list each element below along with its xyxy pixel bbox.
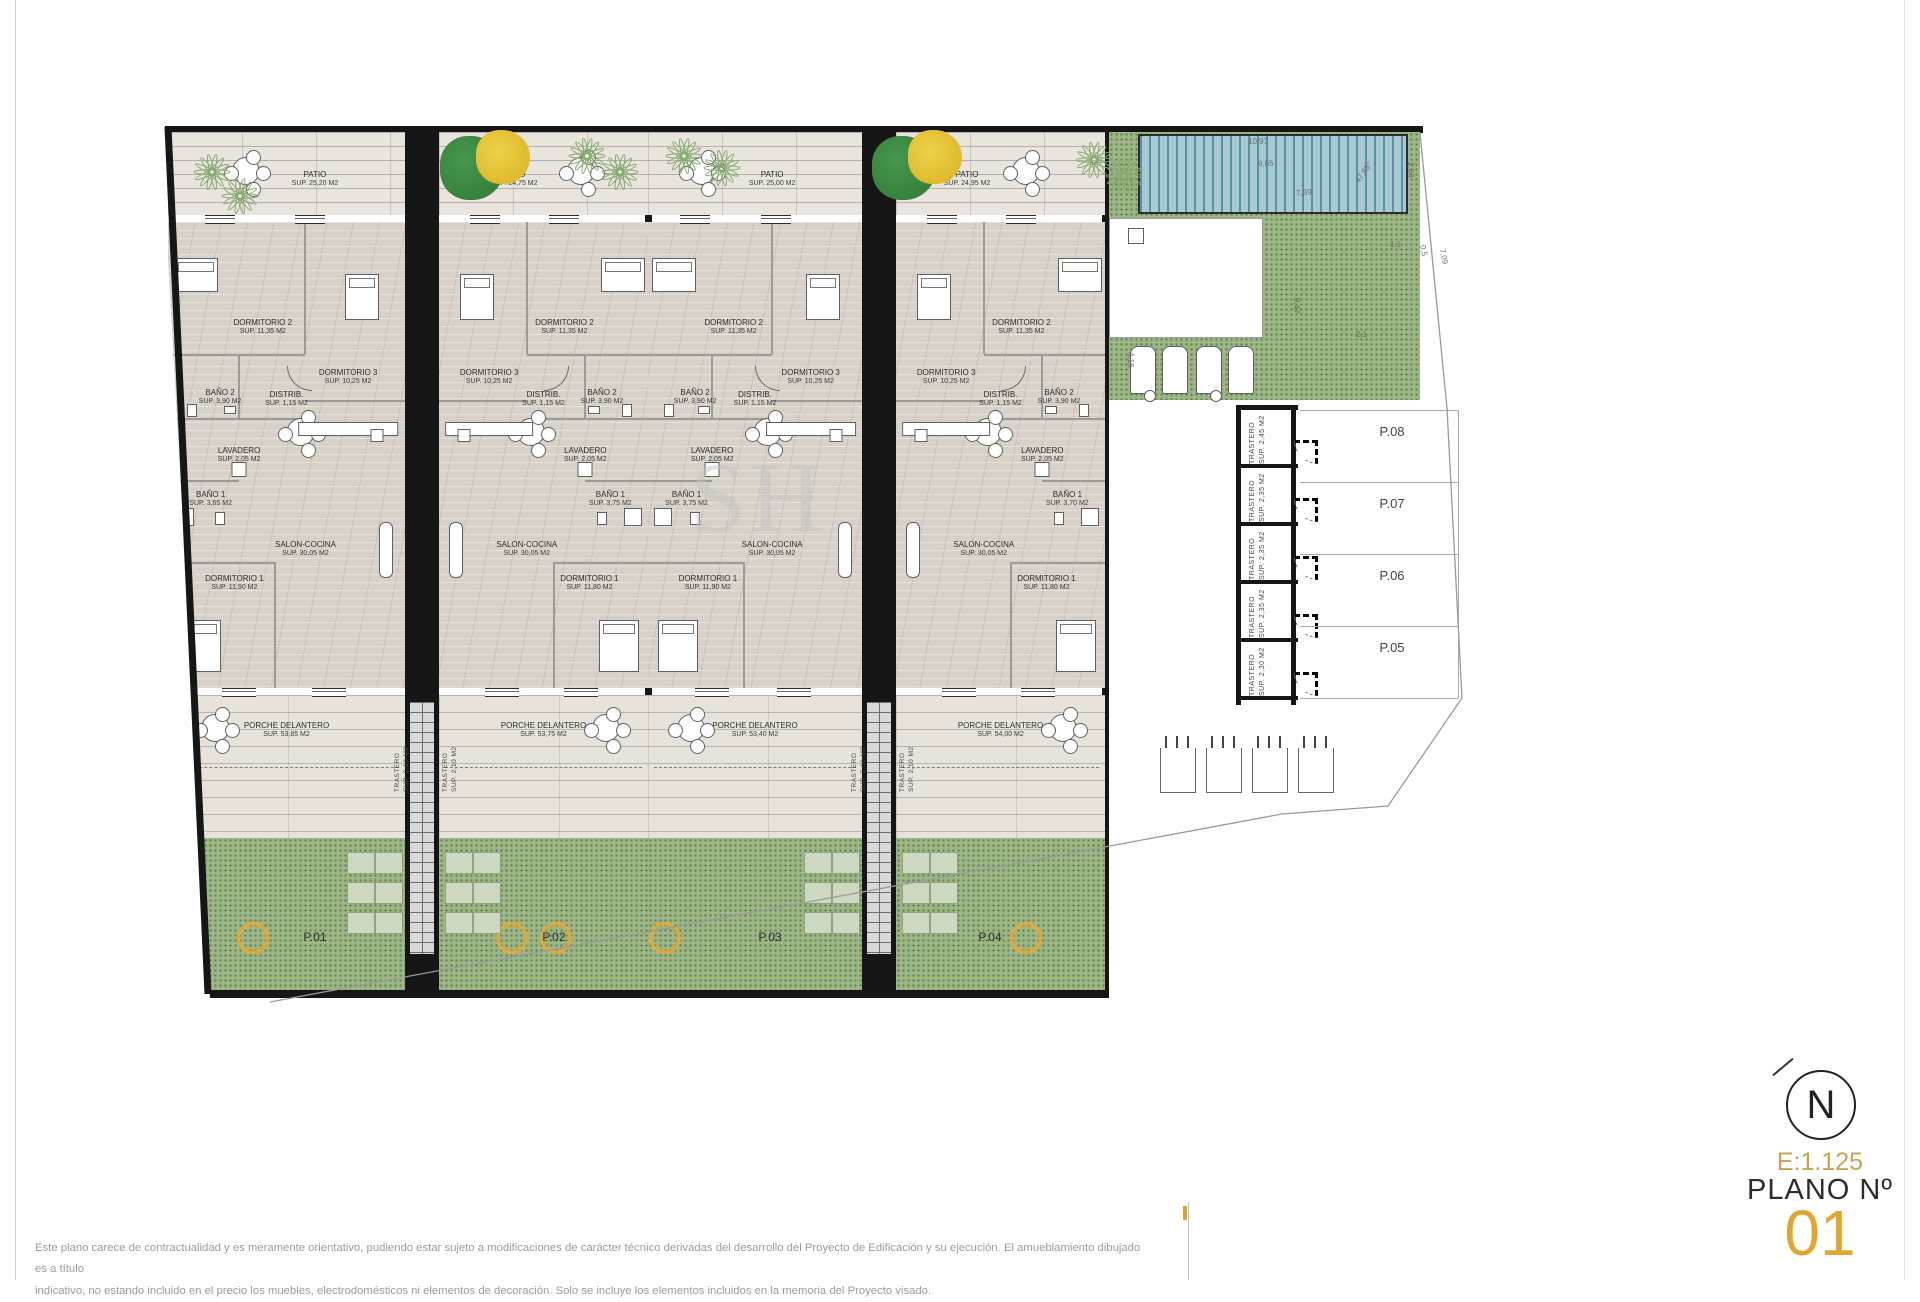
north-compass-icon: N	[1786, 1070, 1856, 1140]
trastero-sup: SUP. 2,10 M2	[907, 700, 916, 792]
room-wall	[238, 354, 240, 418]
room-wall	[984, 354, 1105, 356]
trastero-sup: SUP. 2,10 M2	[859, 700, 868, 792]
furniture-sq	[215, 512, 225, 525]
room-sup: SUP. 10,25 M2	[917, 378, 976, 387]
room-wall	[168, 354, 305, 356]
chair-icon	[225, 723, 240, 738]
pool-shower-square	[1128, 228, 1144, 244]
window-icon	[942, 688, 976, 697]
room-sup: SUP. 3,90 M2	[199, 398, 242, 407]
chair-icon	[668, 723, 683, 738]
stepping-stone	[347, 912, 375, 934]
trastero-label: TRASTEROSUP. 2,35 M2	[1248, 588, 1268, 638]
furniture-sq	[224, 406, 236, 414]
room-label-lavadero: LAVADEROSUP. 2,05 M2	[218, 446, 261, 465]
parking-label-P.06: P.06	[1379, 568, 1404, 583]
window-icon	[777, 688, 811, 697]
room-name: BAÑO 1	[189, 490, 232, 500]
chair-icon	[1003, 166, 1018, 181]
bed-pillow	[605, 262, 641, 272]
room-sup: SUP. 11,35 M2	[992, 328, 1051, 337]
chair-icon	[1063, 707, 1078, 722]
window-icon	[695, 688, 729, 697]
porch-dashed-line	[174, 767, 399, 768]
shaft-wall-stub	[405, 954, 439, 998]
furniture-sofa	[906, 522, 920, 578]
chair-icon	[1025, 150, 1040, 165]
furniture-sq	[915, 429, 928, 442]
patio-sup: SUP. 25,00 M2	[749, 180, 796, 189]
stair-1	[410, 702, 434, 954]
window-icon	[295, 215, 325, 224]
chair-icon	[711, 166, 726, 181]
dimension-text: 0,5	[1418, 244, 1429, 257]
room-wall	[1041, 354, 1043, 418]
stepping-stone	[473, 882, 501, 904]
trastero-door-arc	[1294, 498, 1318, 522]
trastero-sup: SUP. 2,35 M2	[1258, 530, 1268, 580]
trastero-name: TRASTERO	[441, 700, 450, 792]
stepping-stone	[832, 912, 860, 934]
room-name: DORMITORIO 1	[205, 574, 264, 584]
plot-label-P.03: P.03	[758, 930, 781, 944]
bed-pillow	[185, 624, 217, 634]
furniture-bed	[174, 258, 218, 292]
stepping-stone	[804, 882, 832, 904]
rooms-P.01: DORMITORIO 2SUP. 11,35 M2DORMITORIO 3SUP…	[168, 222, 405, 688]
stepping-stone	[445, 882, 473, 904]
bed-pillow	[464, 278, 490, 288]
porch-dashed-line	[654, 767, 856, 768]
stepping-stone	[375, 912, 403, 934]
stepping-stone	[473, 912, 501, 934]
table-with-chairs	[193, 707, 237, 751]
furniture-sq	[187, 404, 197, 417]
room-label-dormitorio1: DORMITORIO 1SUP. 11,80 M2	[560, 574, 619, 593]
furniture-bedv	[1056, 620, 1096, 672]
trastero-name: TRASTERO	[1248, 646, 1258, 696]
patio-name: PATIO	[749, 170, 796, 180]
room-label-dormitorio3: DORMITORIO 3SUP. 10,25 M2	[460, 368, 519, 387]
porch-label: PORCHE DELANTEROSUP. 53,85 M2	[244, 721, 329, 740]
stepping-stone	[902, 882, 930, 904]
plot-label-P.04: P.04	[978, 930, 1001, 944]
garden-marker-circle	[1010, 922, 1042, 954]
stepping-stone	[804, 912, 832, 934]
furniture-sq	[622, 404, 632, 417]
bike-rack-icon	[1206, 748, 1242, 793]
room-label-bano2: BAÑO 2SUP. 3,90 M2	[674, 388, 717, 407]
table-with-chairs	[559, 150, 603, 194]
bed-pillow	[662, 624, 694, 634]
chair-icon	[988, 410, 1003, 425]
room-name: SALON-COCINA	[496, 540, 557, 550]
room-wall	[527, 354, 648, 356]
room-name: BAÑO 2	[674, 388, 717, 398]
stepping-stone	[804, 852, 832, 874]
furniture-sq	[698, 406, 710, 414]
furniture-sq	[830, 429, 843, 442]
room-sup: SUP. 2,05 M2	[1021, 456, 1064, 465]
rack-prong	[1268, 736, 1270, 748]
disclaimer-line-2: indicativo, no estando incluido en el pr…	[35, 1281, 1143, 1302]
lounger-table	[1144, 390, 1156, 402]
trastero-door-arc	[1294, 672, 1318, 696]
room-wall	[743, 562, 745, 688]
stepping-stone	[445, 852, 473, 874]
room-sup: SUP. 1,15 M2	[265, 400, 308, 409]
window-icon	[312, 688, 346, 697]
rack-prong	[1233, 736, 1235, 748]
room-sup: SUP. 30,05 M2	[275, 550, 336, 559]
chair-icon	[246, 182, 261, 197]
room-name: BAÑO 1	[589, 490, 632, 500]
furniture-bedv	[917, 274, 951, 320]
rack-prong	[1176, 736, 1178, 748]
room-name: DORMITORIO 2	[234, 318, 293, 328]
room-label-dormitorio1: DORMITORIO 1SUP. 11,90 M2	[679, 574, 738, 593]
bed-pillow	[1060, 624, 1092, 634]
rooms-P.02: DORMITORIO 2SUP. 11,35 M2DORMITORIO 3SUP…	[439, 222, 648, 688]
dimension-text: 7,09	[1438, 248, 1450, 265]
room-sup: SUP. 3,75 M2	[589, 500, 632, 509]
window-icon	[564, 688, 598, 697]
room-name: DORMITORIO 2	[704, 318, 763, 328]
room-wall	[1010, 562, 1012, 688]
furniture-sofa	[379, 522, 393, 578]
room-sup: SUP. 11,80 M2	[1017, 584, 1076, 593]
room-label-dormitorio2: DORMITORIO 2SUP. 11,35 M2	[992, 318, 1051, 337]
room-wall	[168, 562, 275, 564]
patio-P.03: PATIOSUP. 25,00 M2	[648, 132, 862, 215]
shaft-trastero-label-left: TRASTEROSUP. 2,10 M2	[393, 700, 411, 792]
trastero-sup: SUP. 2,10 M2	[402, 700, 411, 792]
door-arc	[287, 366, 312, 391]
rack-prong	[1314, 736, 1316, 748]
window-icon	[205, 215, 235, 224]
room-label-lavadero: LAVADEROSUP. 2,05 M2	[564, 446, 607, 465]
chair-icon	[701, 182, 716, 197]
dimension-text: 2,64	[1406, 162, 1415, 178]
stepping-stone	[445, 912, 473, 934]
table-with-chairs	[1004, 150, 1048, 194]
window-icon	[222, 688, 256, 697]
trastero-door-arc	[1294, 440, 1318, 464]
room-name: DORMITORIO 3	[781, 368, 840, 378]
trastero-name: TRASTERO	[1248, 530, 1258, 580]
chair-icon	[701, 150, 716, 165]
room-sup: SUP. 10,25 M2	[319, 378, 378, 387]
table-with-chairs	[224, 150, 268, 194]
room-name: DISTRIB.	[979, 390, 1022, 400]
garden-marker-circle	[649, 922, 681, 954]
plan-sheet: PATIOSUP. 25,20 M2DORMITORIO 2SUP. 11,35…	[0, 0, 1920, 1280]
room-wall	[274, 562, 276, 688]
watermark-logo: SH	[690, 440, 826, 555]
porch-dashed-line	[902, 767, 1099, 768]
plot-label-P.02: P.02	[542, 930, 565, 944]
furniture-sofa	[838, 522, 852, 578]
room-name: BAÑO 1	[1046, 490, 1089, 500]
sun-lounger	[1162, 346, 1188, 394]
door-arc	[1001, 366, 1026, 391]
window-icon	[1021, 688, 1055, 697]
building-bottom-wall	[168, 990, 1108, 998]
furniture-sq	[370, 429, 383, 442]
porch-label: PORCHE DELANTEROSUP. 53,40 M2	[712, 721, 797, 740]
room-sup: SUP. 11,90 M2	[679, 584, 738, 593]
table-with-chairs	[584, 707, 628, 751]
patio-sup: SUP. 25,20 M2	[292, 180, 339, 189]
room-sup: SUP. 2,05 M2	[564, 456, 607, 465]
chair-icon	[256, 166, 271, 181]
trastero-label: TRASTEROSUP. 2,45 M2	[1248, 414, 1268, 464]
room-label-distrib: DISTRIB.SUP. 1,15 M2	[265, 390, 308, 409]
patio-label: PATIOSUP. 25,00 M2	[749, 170, 796, 189]
room-label-bano1: BAÑO 1SUP. 3,70 M2	[1046, 490, 1089, 509]
garden-marker-circle	[237, 922, 269, 954]
room-wall	[526, 222, 528, 354]
room-sup: SUP. 10,25 M2	[781, 378, 840, 387]
room-name: DISTRIB.	[522, 390, 565, 400]
trastero-label: TRASTEROSUP. 2,35 M2	[1248, 472, 1268, 522]
room-label-dormitorio3: DORMITORIO 3SUP. 10,25 M2	[917, 368, 976, 387]
furniture-sq	[654, 508, 672, 526]
porch-name: PORCHE DELANTERO	[712, 721, 797, 731]
parking-separator	[1300, 698, 1458, 699]
rack-prong	[1187, 736, 1189, 748]
scale-label: E:1.125	[1700, 1148, 1920, 1177]
room-sup: SUP. 2,05 M2	[218, 456, 261, 465]
chair-icon	[690, 707, 705, 722]
room-sup: SUP. 30,05 M2	[496, 550, 557, 559]
chair-icon	[679, 166, 694, 181]
stepping-stone	[902, 912, 930, 934]
bed-pillow	[178, 262, 214, 272]
table-with-chairs	[1041, 707, 1085, 751]
room-label-bano2: BAÑO 2SUP. 3,90 M2	[581, 388, 624, 407]
room-sup: SUP. 3,65 M2	[189, 500, 232, 509]
rack-prong	[1222, 736, 1224, 748]
dimension-text: 9,47	[1292, 298, 1301, 314]
furniture-sofa	[449, 522, 463, 578]
parking-label-P.05: P.05	[1379, 640, 1404, 655]
shaft-wall-right	[891, 695, 896, 998]
chair-icon	[1041, 723, 1056, 738]
titleblock-divider	[1188, 1202, 1189, 1280]
dimension-text: 2,1	[1356, 330, 1367, 339]
room-wall	[439, 400, 527, 402]
room-wall	[648, 354, 772, 356]
room-sup: SUP. 11,35 M2	[704, 328, 763, 337]
room-wall	[304, 222, 306, 354]
chair-icon	[581, 150, 596, 165]
room-name: DORMITORIO 1	[560, 574, 619, 584]
room-wall	[983, 222, 985, 354]
trastero-name: TRASTERO	[1248, 472, 1258, 522]
porch-name: PORCHE DELANTERO	[958, 721, 1043, 731]
trastero-name: TRASTERO	[850, 700, 859, 792]
stepping-stone	[347, 882, 375, 904]
rack-prong	[1279, 736, 1281, 748]
room-name: DORMITORIO 2	[992, 318, 1051, 328]
shaft-wall-upper	[405, 126, 439, 702]
shaft-wall-upper	[862, 126, 896, 702]
shaft-trastero-label-right: TRASTEROSUP. 2,10 M2	[898, 700, 916, 792]
chair-icon	[531, 410, 546, 425]
chair-icon	[606, 707, 621, 722]
trastero-label: TRASTEROSUP. 2,30 M2	[1248, 646, 1268, 696]
tree-yellow	[908, 130, 962, 184]
stepping-stone	[375, 882, 403, 904]
furniture-bedv	[345, 274, 379, 320]
door-arc	[544, 366, 569, 391]
room-label-salon: SALON-COCINASUP. 30,05 M2	[496, 540, 557, 559]
chair-icon	[246, 150, 261, 165]
furniture-sq	[588, 406, 600, 414]
furniture-sq	[1081, 508, 1099, 526]
chair-icon	[584, 723, 599, 738]
room-wall	[585, 480, 648, 482]
room-wall	[771, 222, 773, 354]
trastero-sup: SUP. 2,45 M2	[1258, 414, 1268, 464]
chair-icon	[1025, 182, 1040, 197]
room-wall	[896, 400, 984, 402]
rack-prong	[1165, 736, 1167, 748]
room-sup: SUP. 1,15 M2	[734, 400, 777, 409]
room-name: DORMITORIO 1	[679, 574, 738, 584]
shaft-wall-stub	[862, 954, 896, 998]
furniture-bedv	[599, 620, 639, 672]
parking-right-edge	[1458, 410, 1459, 699]
trastero-sup: SUP. 2,30 M2	[1258, 646, 1268, 696]
room-name: DORMITORIO 3	[917, 368, 976, 378]
trastero-name: TRASTERO	[898, 700, 907, 792]
stepping-stone	[375, 852, 403, 874]
porch-sup: SUP. 54,00 M2	[958, 731, 1043, 740]
bike-rack-icon	[1160, 748, 1196, 793]
room-label-lavadero: LAVADEROSUP. 2,05 M2	[1021, 446, 1064, 465]
room-wall	[168, 480, 239, 482]
gold-tick-mark	[1183, 1206, 1187, 1220]
chair-icon	[1063, 739, 1078, 754]
rooms-P.04: DORMITORIO 2SUP. 11,35 M2DORMITORIO 3SUP…	[896, 222, 1105, 688]
porch-P.01: PORCHE DELANTEROSUP. 53,85 M2	[168, 695, 405, 838]
table-with-chairs	[680, 150, 724, 194]
room-wall	[584, 354, 586, 418]
chair-icon	[559, 166, 574, 181]
stepping-stone	[832, 852, 860, 874]
room-label-dormitorio3: DORMITORIO 3SUP. 10,25 M2	[319, 368, 378, 387]
room-sup: SUP. 1,15 M2	[522, 400, 565, 409]
room-sup: SUP. 11,90 M2	[205, 584, 264, 593]
room-sup: SUP. 11,35 M2	[234, 328, 293, 337]
porch-P.03: PORCHE DELANTEROSUP. 53,40 M2	[648, 695, 862, 838]
furniture-sq	[1045, 406, 1057, 414]
parking-label-P.08: P.08	[1379, 424, 1404, 439]
trastero-name: TRASTERO	[393, 700, 402, 792]
room-label-dormitorio2: DORMITORIO 2SUP. 11,35 M2	[704, 318, 763, 337]
lounger-table	[1210, 390, 1222, 402]
chair-icon	[606, 739, 621, 754]
chair-icon	[1035, 166, 1050, 181]
furniture-sq	[176, 508, 194, 526]
furniture-bedv	[658, 620, 698, 672]
bed-pillow	[1062, 262, 1098, 272]
plan-number-value: 01	[1700, 1196, 1920, 1270]
bed-pillow	[603, 624, 635, 634]
table-with-chairs	[669, 707, 713, 751]
porch-label: PORCHE DELANTEROSUP. 54,00 M2	[958, 721, 1043, 740]
stepping-stone	[473, 852, 501, 874]
chair-icon	[581, 182, 596, 197]
room-label-dormitorio3: DORMITORIO 3SUP. 10,25 M2	[781, 368, 840, 387]
shaft-wall-right	[434, 695, 439, 998]
window-icon	[470, 215, 500, 224]
furniture-bedv	[181, 620, 221, 672]
room-sup: SUP. 11,35 M2	[535, 328, 594, 337]
room-label-bano1: BAÑO 1SUP. 3,65 M2	[189, 490, 232, 509]
window-icon	[549, 215, 579, 224]
parking-separator	[1300, 410, 1458, 411]
room-name: BAÑO 2	[199, 388, 242, 398]
dimension-text: 4,16	[1126, 352, 1135, 368]
trastero-sup: SUP. 2,35 M2	[1258, 588, 1268, 638]
room-label-salon: SALON-COCINASUP. 30,05 M2	[953, 540, 1014, 559]
furniture-sq	[624, 508, 642, 526]
window-icon	[761, 215, 791, 224]
chair-icon	[690, 739, 705, 754]
patio-P.01: PATIOSUP. 25,20 M2	[168, 132, 405, 215]
trastero-name: TRASTERO	[1248, 414, 1258, 464]
disclaimer-text: Este plano carece de contractualidad y e…	[35, 1238, 1143, 1302]
room-name: LAVADERO	[1021, 446, 1064, 456]
rack-prong	[1257, 736, 1259, 748]
chair-icon	[301, 443, 316, 458]
room-name: DORMITORIO 3	[460, 368, 519, 378]
furniture-bed	[601, 258, 645, 292]
parking-separator	[1300, 482, 1458, 483]
room-name: DORMITORIO 3	[319, 368, 378, 378]
bike-rack-icon	[1252, 748, 1288, 793]
parking-separator	[1300, 554, 1458, 555]
rack-prong	[1303, 736, 1305, 748]
window-icon	[1006, 215, 1036, 224]
chair-icon	[1073, 723, 1088, 738]
patio-label: PATIOSUP. 25,20 M2	[292, 170, 339, 189]
chair-icon	[590, 166, 605, 181]
room-label-dormitorio1: DORMITORIO 1SUP. 11,80 M2	[1017, 574, 1076, 593]
dimension-text: 9,65	[1258, 159, 1274, 169]
trastero-label: TRASTEROSUP. 2,35 M2	[1248, 530, 1268, 580]
trastero-name: TRASTERO	[1248, 588, 1258, 638]
porch-name: PORCHE DELANTERO	[244, 721, 329, 731]
patio-name: PATIO	[292, 170, 339, 180]
stair-2	[867, 702, 891, 954]
room-name: DORMITORIO 1	[1017, 574, 1076, 584]
parking-label-P.07: P.07	[1379, 496, 1404, 511]
porch-P.04: PORCHE DELANTEROSUP. 54,00 M2	[896, 695, 1105, 838]
porch-P.02: PORCHE DELANTEROSUP. 53,75 M2	[439, 695, 648, 838]
room-name: SALON-COCINA	[953, 540, 1014, 550]
porch-label: PORCHE DELANTEROSUP. 53,75 M2	[501, 721, 586, 740]
room-sup: SUP. 11,80 M2	[560, 584, 619, 593]
room-wall	[554, 562, 648, 564]
parking-separator	[1300, 626, 1458, 627]
room-name: BAÑO 2	[581, 388, 624, 398]
chair-icon	[616, 723, 631, 738]
